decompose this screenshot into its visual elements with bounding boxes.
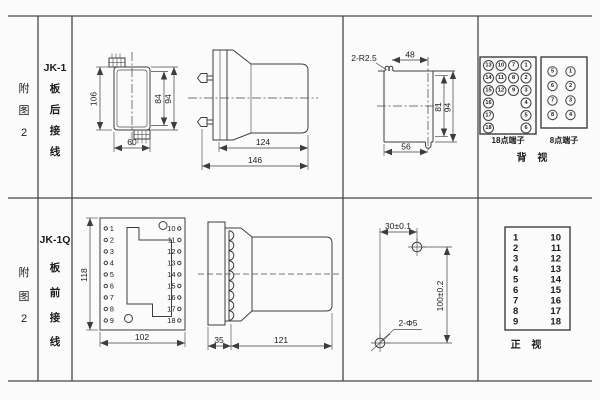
terminal-8: 5 6 7 8 1 2 3 4 8点端子 xyxy=(541,57,587,145)
dim-back-height: 106 xyxy=(89,92,99,106)
plate-terminal: 1 xyxy=(110,224,114,233)
plate-terminal: 17 xyxy=(167,305,175,314)
terminal-18: 13 14 15 16 17 18 10 11 12 7 8 9 1 2 3 4… xyxy=(480,57,536,145)
front-view-terminal: 4 xyxy=(513,264,519,275)
terminal-number: 2 xyxy=(524,75,527,81)
drill-hole-note: 2-Φ5 xyxy=(398,318,417,328)
terminal-number: 13 xyxy=(485,63,491,69)
jk1q-front-plate: 1 2 3 4 5 6 7 8 9 10 11 12 13 14 15 16 1… xyxy=(79,218,185,347)
dim-back-inner-height: 84 xyxy=(153,94,163,104)
plate-terminal: 7 xyxy=(110,293,114,302)
front-view-terminal: 17 xyxy=(550,306,561,317)
terminal-number: 17 xyxy=(485,113,491,119)
plate-terminal: 9 xyxy=(110,316,114,325)
dim-back-width: 60 xyxy=(127,137,137,147)
fig-char: 附 xyxy=(19,81,30,95)
dim-cutout-bottom: 56 xyxy=(401,142,411,152)
terminal-number: 9 xyxy=(512,88,515,94)
terminal-number: 12 xyxy=(498,88,504,94)
wiring-char: 线 xyxy=(50,145,61,158)
wiring-char: 接 xyxy=(50,124,61,137)
terminal-number: 16 xyxy=(485,100,491,106)
mounting-hole xyxy=(125,315,133,323)
terminal-number: 2 xyxy=(569,83,572,89)
dim-side-plate: 35 xyxy=(214,335,224,345)
front-view-terminal: 12 xyxy=(550,254,561,265)
row1-header: 附 图 2 JK-1 板 后 接 线 xyxy=(19,62,67,158)
terminal-number: 4 xyxy=(524,100,528,106)
terminal-number: 5 xyxy=(551,69,554,75)
dim-hole-spacing-x: 30±0.1 xyxy=(385,221,411,231)
wiring-char: 线 xyxy=(50,335,61,348)
fig-char: 2 xyxy=(21,127,27,139)
terminal-number: 7 xyxy=(551,98,554,104)
terminal-number: 14 xyxy=(485,75,492,81)
plate-terminal: 6 xyxy=(110,282,114,291)
wiring-char: 后 xyxy=(50,103,61,116)
front-view-terminal: 9 xyxy=(513,317,518,328)
terminal-number: 8 xyxy=(512,75,515,81)
jk1-back-view: 106 60 84 94 xyxy=(89,52,179,152)
row2-header: 附 图 2 JK-1Q 板 前 接 线 xyxy=(19,234,71,348)
front-view-terminal: 2 xyxy=(513,243,518,254)
plate-terminal: 4 xyxy=(110,259,114,268)
terminal-number: 1 xyxy=(524,63,527,69)
terminal-number: 1 xyxy=(569,69,572,75)
wiring-char: 板 xyxy=(50,261,61,274)
front-view-terminal: 3 xyxy=(513,254,518,265)
technical-drawing: 附 图 2 JK-1 板 后 接 线 106 60 84 94 xyxy=(0,0,600,400)
dim-hole-spacing-y: 100±0.2 xyxy=(435,280,445,311)
terminal-number: 15 xyxy=(485,88,491,94)
front-view-terminal: 1 xyxy=(513,233,519,244)
plate-terminal: 12 xyxy=(167,247,175,256)
fig-char: 2 xyxy=(21,313,27,325)
dim-cutout-outer-height: 94 xyxy=(443,103,453,113)
terminal-number: 11 xyxy=(498,75,504,81)
terminal-number: 6 xyxy=(524,125,527,131)
wiring-char: 前 xyxy=(50,286,61,299)
dim-plate-height: 118 xyxy=(79,268,89,282)
terminal-circles-18 xyxy=(484,61,532,134)
mounting-hole xyxy=(159,222,167,230)
terminal-number: 4 xyxy=(569,112,573,118)
dim-plate-width: 102 xyxy=(135,332,149,342)
front-view-label: 正 视 xyxy=(511,338,546,351)
front-view-terminal: 14 xyxy=(550,275,561,286)
plate-terminal: 16 xyxy=(167,293,175,302)
model-label: JK-1 xyxy=(44,62,67,74)
front-view-terminal: 6 xyxy=(513,285,518,296)
dim-side-body: 121 xyxy=(274,335,288,345)
dim-back-outer-height: 94 xyxy=(163,94,173,104)
plate-terminal: 2 xyxy=(110,236,114,245)
jk1-side-view: 124 146 xyxy=(188,50,318,170)
terminal-number: 7 xyxy=(512,63,515,69)
wiring-char: 板 xyxy=(50,82,61,95)
jk1q-drill-plan: 30±0.1 100±0.2 2-Φ5 xyxy=(371,221,452,352)
terminal-teeth xyxy=(229,231,234,321)
drawing-sheet: 附 图 2 JK-1 板 后 接 线 106 60 84 94 xyxy=(0,0,600,400)
plate-terminal: 8 xyxy=(110,305,114,314)
terminal-8-label: 8点端子 xyxy=(550,135,578,145)
front-view-terminal: 15 xyxy=(550,285,561,296)
front-view-terminal: 18 xyxy=(550,317,561,328)
dim-cutout-top: 48 xyxy=(405,50,415,60)
jk1q-side-view: 35 121 xyxy=(198,222,340,350)
terminal-number: 5 xyxy=(524,113,527,119)
front-view-terminal: 8 xyxy=(513,306,518,317)
model-label: JK-1Q xyxy=(40,234,71,246)
plate-terminal: 10 xyxy=(167,224,175,233)
fig-char: 附 xyxy=(19,265,30,279)
plate-terminal: 15 xyxy=(167,282,175,291)
plate-terminal: 13 xyxy=(167,259,175,268)
dim-cutout-inner-height: 81 xyxy=(433,102,443,112)
terminal-number: 3 xyxy=(569,98,572,104)
front-view-terminal: 13 xyxy=(550,264,561,275)
fig-char: 图 xyxy=(19,104,30,117)
dim-side-body: 124 xyxy=(256,137,270,147)
jk1q-front-view-table: 1 2 3 4 5 6 7 8 9 10 11 12 13 14 15 16 1… xyxy=(505,227,570,351)
terminal-number: 10 xyxy=(498,63,504,69)
fig-char: 图 xyxy=(19,290,30,303)
jk1-panel-cutout: 2-R2.5 48 81 94 56 xyxy=(351,50,457,157)
plate-terminal: 14 xyxy=(167,270,175,279)
dim-side-total: 146 xyxy=(248,155,262,165)
front-view-terminal: 10 xyxy=(550,233,561,244)
terminal-18-label: 18点端子 xyxy=(492,135,525,145)
terminal-number: 3 xyxy=(524,88,527,94)
wiring-char: 接 xyxy=(50,311,61,324)
dim-cutout-slots: 2-R2.5 xyxy=(351,53,377,63)
plate-terminal: 5 xyxy=(110,270,114,279)
plate-terminal: 3 xyxy=(110,247,114,256)
front-view-terminal: 11 xyxy=(551,243,562,254)
plate-terminal: 18 xyxy=(167,316,175,325)
terminal-number: 6 xyxy=(551,83,554,89)
terminal-number: 8 xyxy=(551,112,554,118)
rear-view-label: 背 视 xyxy=(517,151,552,164)
front-view-terminal: 5 xyxy=(513,275,519,286)
plate-terminal: 11 xyxy=(168,236,176,245)
terminal-number: 18 xyxy=(485,125,491,131)
front-view-terminal: 16 xyxy=(550,296,561,307)
front-view-terminal: 7 xyxy=(513,296,518,307)
